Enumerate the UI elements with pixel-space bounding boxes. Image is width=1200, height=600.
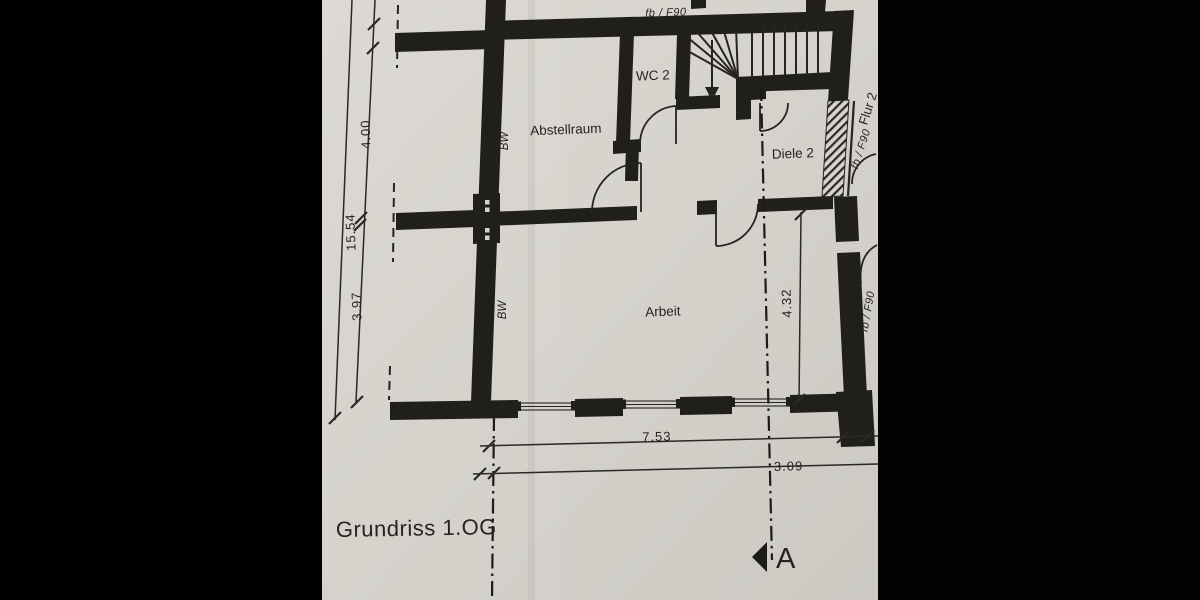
paper-crease (528, 0, 535, 600)
window-3 (730, 397, 791, 407)
room-label-diele: Diele 2 (772, 145, 815, 161)
wall-bottom (390, 400, 518, 420)
fire-rating-label-top: fb / F90 (645, 6, 687, 19)
dim-label-bottom-right: 3.09 (774, 458, 804, 474)
floor-plan-photo: fb / F90 Abstellraum WC 2 Diele 2 Arbeit… (0, 0, 1200, 600)
wall-right-lower-a (834, 196, 859, 242)
right-letterbox-bar (878, 0, 1200, 600)
dim-label-total-left: 15.54 (342, 213, 358, 251)
plan-title: Grundriss 1.OG (336, 514, 497, 542)
dim-label-lower-left: 3.97 (348, 291, 364, 321)
screenshot-stage: fb / F90 Abstellraum WC 2 Diele 2 Arbeit… (0, 0, 1200, 600)
left-letterbox-bar (0, 0, 322, 600)
dim-label-arbeit-depth: 4.32 (778, 288, 794, 318)
wall-top-left (395, 30, 492, 52)
window-1 (516, 401, 576, 411)
section-marker-letter: A (776, 543, 796, 575)
bw-label-lower: BW (497, 300, 509, 320)
room-label-arbeit: Arbeit (645, 303, 681, 319)
wall-mid-left (396, 210, 476, 230)
room-label-wc: WC 2 (636, 67, 670, 83)
bw-label-upper: BW (499, 131, 511, 151)
room-label-abstellraum: Abstellraum (530, 121, 602, 138)
dim-label-upper-left: 4.00 (357, 119, 373, 149)
wall-stair-left (675, 34, 691, 99)
dim-label-bottom-main: 7.53 (642, 429, 672, 445)
window-2 (621, 399, 681, 409)
